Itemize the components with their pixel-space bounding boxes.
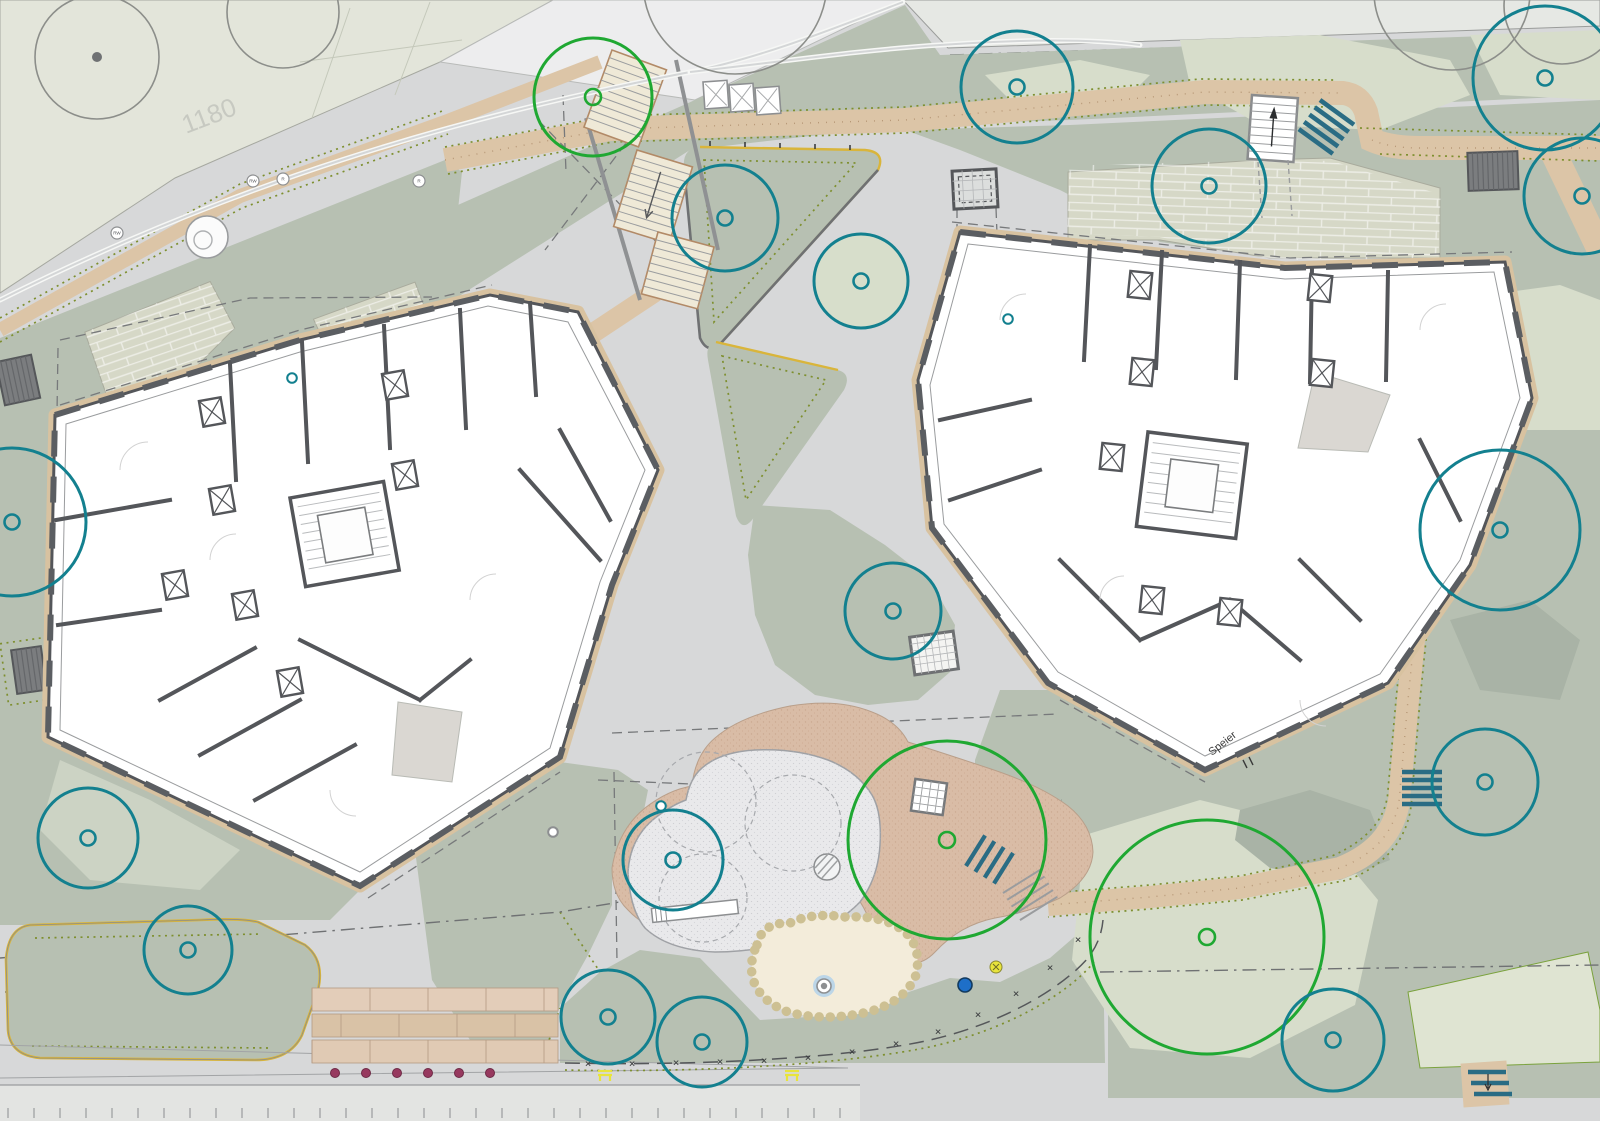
plank-paving-band: [312, 988, 558, 1063]
bollard: [331, 1069, 340, 1078]
play-point-yellow: [990, 961, 1002, 973]
utility-marker: RW: [111, 227, 123, 239]
building-west-core: [290, 482, 399, 587]
elevator-shaft: [209, 485, 235, 514]
elevator-shaft: [1140, 586, 1165, 614]
elevator-shaft: [1310, 359, 1335, 387]
utility-marker: R: [277, 173, 289, 185]
bollard: [393, 1069, 402, 1078]
bike-locker: [703, 80, 729, 109]
drain-marker: [548, 827, 558, 837]
elevator-shaft: [392, 460, 418, 489]
fence-x-icon: ×: [1013, 987, 1020, 1000]
site-plan-canvas: ×××××××××××××: [0, 0, 1600, 1121]
fence-x-icon: ×: [805, 1051, 812, 1064]
fence-x-icon: ×: [935, 1025, 942, 1038]
planter-raised-bed: [6, 919, 320, 1060]
fence-x-icon: ×: [849, 1045, 856, 1058]
manhole: [186, 216, 228, 258]
utility-marker-label: RW: [113, 231, 121, 236]
play-point-blue: [958, 978, 972, 992]
bollard: [455, 1069, 464, 1078]
fence-x-icon: ×: [975, 1008, 982, 1021]
bollard: [486, 1069, 495, 1078]
elevator-shaft: [1308, 274, 1333, 302]
fence-x-icon: ×: [761, 1054, 768, 1067]
elevator-shaft: [199, 397, 225, 426]
climbing-grid: [911, 779, 947, 815]
bollard: [424, 1069, 433, 1078]
paving-plank-row: [312, 1014, 558, 1037]
utility-marker-label: RW: [249, 179, 257, 184]
tree-trunk-icon: [92, 52, 102, 62]
elevator-shaft: [1130, 358, 1155, 386]
paving-plank-row: [312, 1040, 558, 1063]
spinner: [814, 853, 840, 880]
drain-marker: [287, 373, 297, 383]
tree-marker-teal: [814, 234, 908, 328]
water-feature: [813, 975, 835, 997]
utility-marker: R: [413, 175, 425, 187]
elevator-shaft: [162, 570, 188, 599]
building-east-core: [1136, 432, 1247, 538]
utility-marker: RW: [247, 175, 259, 187]
fence-x-icon: ×: [893, 1037, 900, 1050]
elevator-shaft: [232, 590, 258, 619]
elevator-shaft: [1100, 443, 1125, 471]
bike-locker: [729, 83, 755, 112]
sidewalk-south: [0, 1085, 860, 1121]
fence-x-icon: ×: [1047, 961, 1054, 974]
fence-x-icon: ×: [1075, 933, 1082, 946]
elevator-shaft: [382, 370, 408, 399]
bike-locker: [755, 86, 781, 115]
elevator-shaft: [1128, 271, 1153, 299]
paving-plank-row: [312, 988, 558, 1011]
fence-x-icon: ×: [673, 1056, 680, 1069]
site-plan-svg: ×××××××××××××: [0, 0, 1600, 1121]
bollard: [362, 1069, 371, 1078]
elevator-shaft: [277, 667, 303, 696]
fence-x-icon: ×: [717, 1055, 724, 1068]
building-west-terrace: [392, 702, 462, 782]
drain-marker: [1003, 314, 1013, 324]
elevator-shaft: [1218, 598, 1243, 626]
